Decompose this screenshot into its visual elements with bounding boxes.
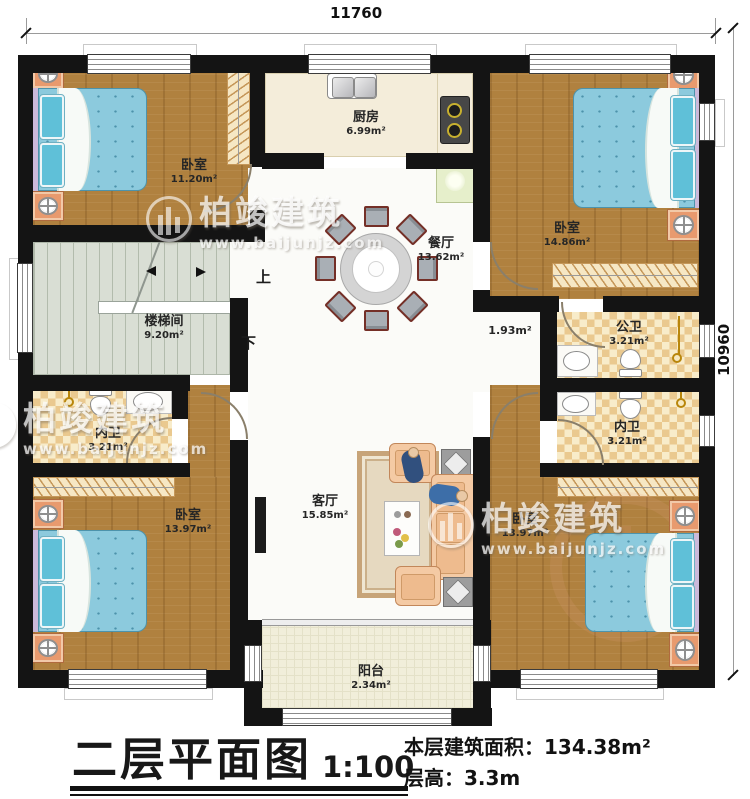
room-area: 11.20m² <box>171 174 217 186</box>
wall-corridor-top-right <box>603 296 714 312</box>
lamp-icon <box>38 197 58 215</box>
wardrobe-bedroom-bottom-left <box>33 477 175 497</box>
window-kitchen <box>308 54 431 74</box>
room-label-ensuite-left: 内卫 3.21m² <box>88 426 127 454</box>
lamp-icon <box>675 639 695 661</box>
wall-kitchen-bottom-right <box>406 153 473 169</box>
toilet-bowl <box>620 349 641 369</box>
nightstand <box>33 500 63 528</box>
plan-scale: 1:100 <box>322 753 414 782</box>
toilet-tank <box>619 369 642 377</box>
window-ensuite-right <box>699 415 715 447</box>
plan-title: 二层平面图 <box>72 737 312 782</box>
room-label-bedroom-bottom-right: 卧室 13.97m² <box>502 512 548 540</box>
room-label-stairwell: 楼梯间 9.20m² <box>144 314 183 342</box>
window-stairwell <box>17 263 33 353</box>
room-area: 2.34m² <box>351 680 390 692</box>
bathroom-sink <box>562 395 589 413</box>
floor-area-line: 本层建筑面积：134.38m² <box>404 737 651 757</box>
room-name: 卧室 <box>544 221 590 237</box>
room-label-living: 客厅 15.85m² <box>302 494 348 522</box>
kitchen-sink <box>327 73 377 99</box>
lamp-icon <box>675 506 695 526</box>
room-area: 9.20m² <box>144 330 183 342</box>
floor-height-label: 层高： <box>404 766 464 790</box>
room-name: 厨房 <box>346 110 385 126</box>
stove-burner <box>447 103 462 118</box>
sink-basin <box>354 77 376 98</box>
floor-stair-access <box>230 242 248 300</box>
toilet-tank <box>619 391 642 399</box>
window-balcony <box>282 708 452 726</box>
wall-corridor-top-left <box>473 296 559 312</box>
wall-stairwell-top <box>18 225 252 242</box>
bed-top-right <box>573 88 700 208</box>
wall-living-left <box>230 440 248 670</box>
window-bedroom-top-right-side <box>699 103 715 141</box>
dining-chair <box>364 310 389 331</box>
room-name: 卧室 <box>502 512 548 528</box>
floor-plan: 上 下 <box>0 0 750 799</box>
window-balcony-right <box>473 645 491 682</box>
room-area: 3.21m² <box>88 442 127 454</box>
shower-head <box>672 353 682 363</box>
room-label-bedroom-top-right: 卧室 14.86m² <box>544 221 590 249</box>
stair-direction-arrow-left <box>146 266 156 276</box>
room-area: 13.97m² <box>502 528 548 540</box>
wall-ensuite-left-bottom <box>18 463 190 477</box>
room-name: 餐厅 <box>418 236 464 252</box>
refrigerator-top <box>445 171 465 191</box>
dimension-line-right <box>733 28 734 676</box>
corridor-dimension-label: 1.93m² <box>488 324 531 337</box>
bed-bottom-left <box>33 530 147 632</box>
window-sill <box>516 688 664 700</box>
wall-kitchen-bottom-left <box>262 153 324 169</box>
closet-bedroom-top-left <box>227 58 250 165</box>
armchair <box>395 566 441 606</box>
person-head <box>456 490 468 502</box>
wall-exterior-left <box>18 55 33 688</box>
bed-bottom-right <box>585 533 699 632</box>
dimension-line-top <box>26 33 716 34</box>
dining-chair <box>364 206 389 227</box>
nightstand <box>33 192 63 220</box>
room-name: 客厅 <box>302 494 348 510</box>
room-label-kitchen: 厨房 6.99m² <box>346 110 385 138</box>
wall-living-right <box>473 437 490 622</box>
wall-ensuite-right-left-upper <box>540 392 557 421</box>
bed-top-left <box>33 88 147 191</box>
title-underline-thin <box>70 794 408 796</box>
stair-direction-arrow-right <box>196 267 206 277</box>
nightstand <box>670 634 700 666</box>
room-label-bedroom-top-left: 卧室 11.20m² <box>171 158 217 186</box>
lamp-icon <box>673 215 694 235</box>
wall-bath-divider <box>540 378 714 392</box>
dimension-right: 10960 <box>715 326 733 376</box>
stair-handrail <box>98 301 242 314</box>
window-bedroom-bottom-right <box>520 669 658 689</box>
bathroom-sink <box>563 351 590 371</box>
room-label-bedroom-bottom-left: 卧室 13.97m² <box>165 508 211 536</box>
window-sill <box>64 688 213 700</box>
room-name: 内卫 <box>607 420 646 436</box>
room-area: 3.21m² <box>609 336 648 348</box>
bathroom-sink <box>133 392 163 411</box>
nightstand <box>668 210 699 240</box>
wall-public-bath-left <box>540 312 557 378</box>
floor-height-line: 层高：3.3m <box>404 768 520 788</box>
corridor-width: 1.93m² <box>488 324 531 337</box>
tv-unit <box>255 497 266 553</box>
window-balcony-left <box>244 645 262 682</box>
room-area: 15.85m² <box>302 510 348 522</box>
room-name: 楼梯间 <box>144 314 183 330</box>
floor-height-value: 3.3m <box>464 766 520 790</box>
shower-head <box>64 397 74 407</box>
dimension-top: 11760 <box>330 4 382 22</box>
kitchen-stove <box>440 96 470 144</box>
dining-chair <box>315 256 336 281</box>
watermark-logo-icon <box>0 402 16 448</box>
coffee-table <box>384 501 420 556</box>
balcony-sliding-door <box>262 619 474 626</box>
dining-table <box>340 233 412 305</box>
lamp-icon <box>38 639 58 657</box>
stair-down-label: 下 <box>241 332 256 353</box>
room-label-ensuite-right: 内卫 3.21m² <box>607 420 646 448</box>
room-name: 内卫 <box>88 426 127 442</box>
window-bedroom-top-left <box>87 54 191 74</box>
stair-up-label: 上 <box>256 266 271 287</box>
lamp-icon <box>38 505 58 523</box>
room-name: 卧室 <box>171 158 217 174</box>
floor-area-label: 本层建筑面积： <box>404 735 544 759</box>
room-label-public-bathroom: 公卫 3.21m² <box>609 320 648 348</box>
shower-hose <box>678 316 680 356</box>
window-bedroom-top-right <box>529 54 671 74</box>
room-name: 阳台 <box>351 664 390 680</box>
window-sill <box>715 99 725 147</box>
room-area: 3.21m² <box>607 436 646 448</box>
room-label-balcony: 阳台 2.34m² <box>351 664 390 692</box>
wall-stairwell-bottom <box>18 375 190 391</box>
room-area: 13.97m² <box>165 524 211 536</box>
window-bedroom-bottom-left <box>68 669 207 689</box>
stove-burner <box>447 123 462 138</box>
wall-kitchen-right <box>473 55 490 242</box>
title-underline-thick <box>70 786 408 791</box>
wall-exterior-right <box>699 55 715 688</box>
floor-area-value: 134.38m² <box>544 735 651 759</box>
nightstand <box>33 634 63 662</box>
shower-head <box>676 398 686 408</box>
wardrobe-bedroom-top-right <box>552 263 698 288</box>
wall-ensuite-right-bottom <box>540 463 714 477</box>
wall-ensuite-left-right-upper <box>172 385 188 419</box>
person-head <box>408 447 419 458</box>
window-public-bathroom <box>699 324 715 358</box>
door-swing-bedroom-bottom-left <box>201 392 248 439</box>
wall-kitchen-left-lower <box>250 210 265 242</box>
wall-kitchen-left-upper <box>250 55 265 167</box>
room-area: 6.99m² <box>346 126 385 138</box>
room-area: 14.86m² <box>544 237 590 249</box>
nightstand <box>670 501 700 531</box>
room-area: 13.62m² <box>418 252 464 264</box>
room-name: 公卫 <box>609 320 648 336</box>
room-label-dining: 餐厅 13.62m² <box>418 236 464 264</box>
room-name: 卧室 <box>165 508 211 524</box>
side-table <box>443 577 473 607</box>
sink-basin <box>332 77 354 98</box>
